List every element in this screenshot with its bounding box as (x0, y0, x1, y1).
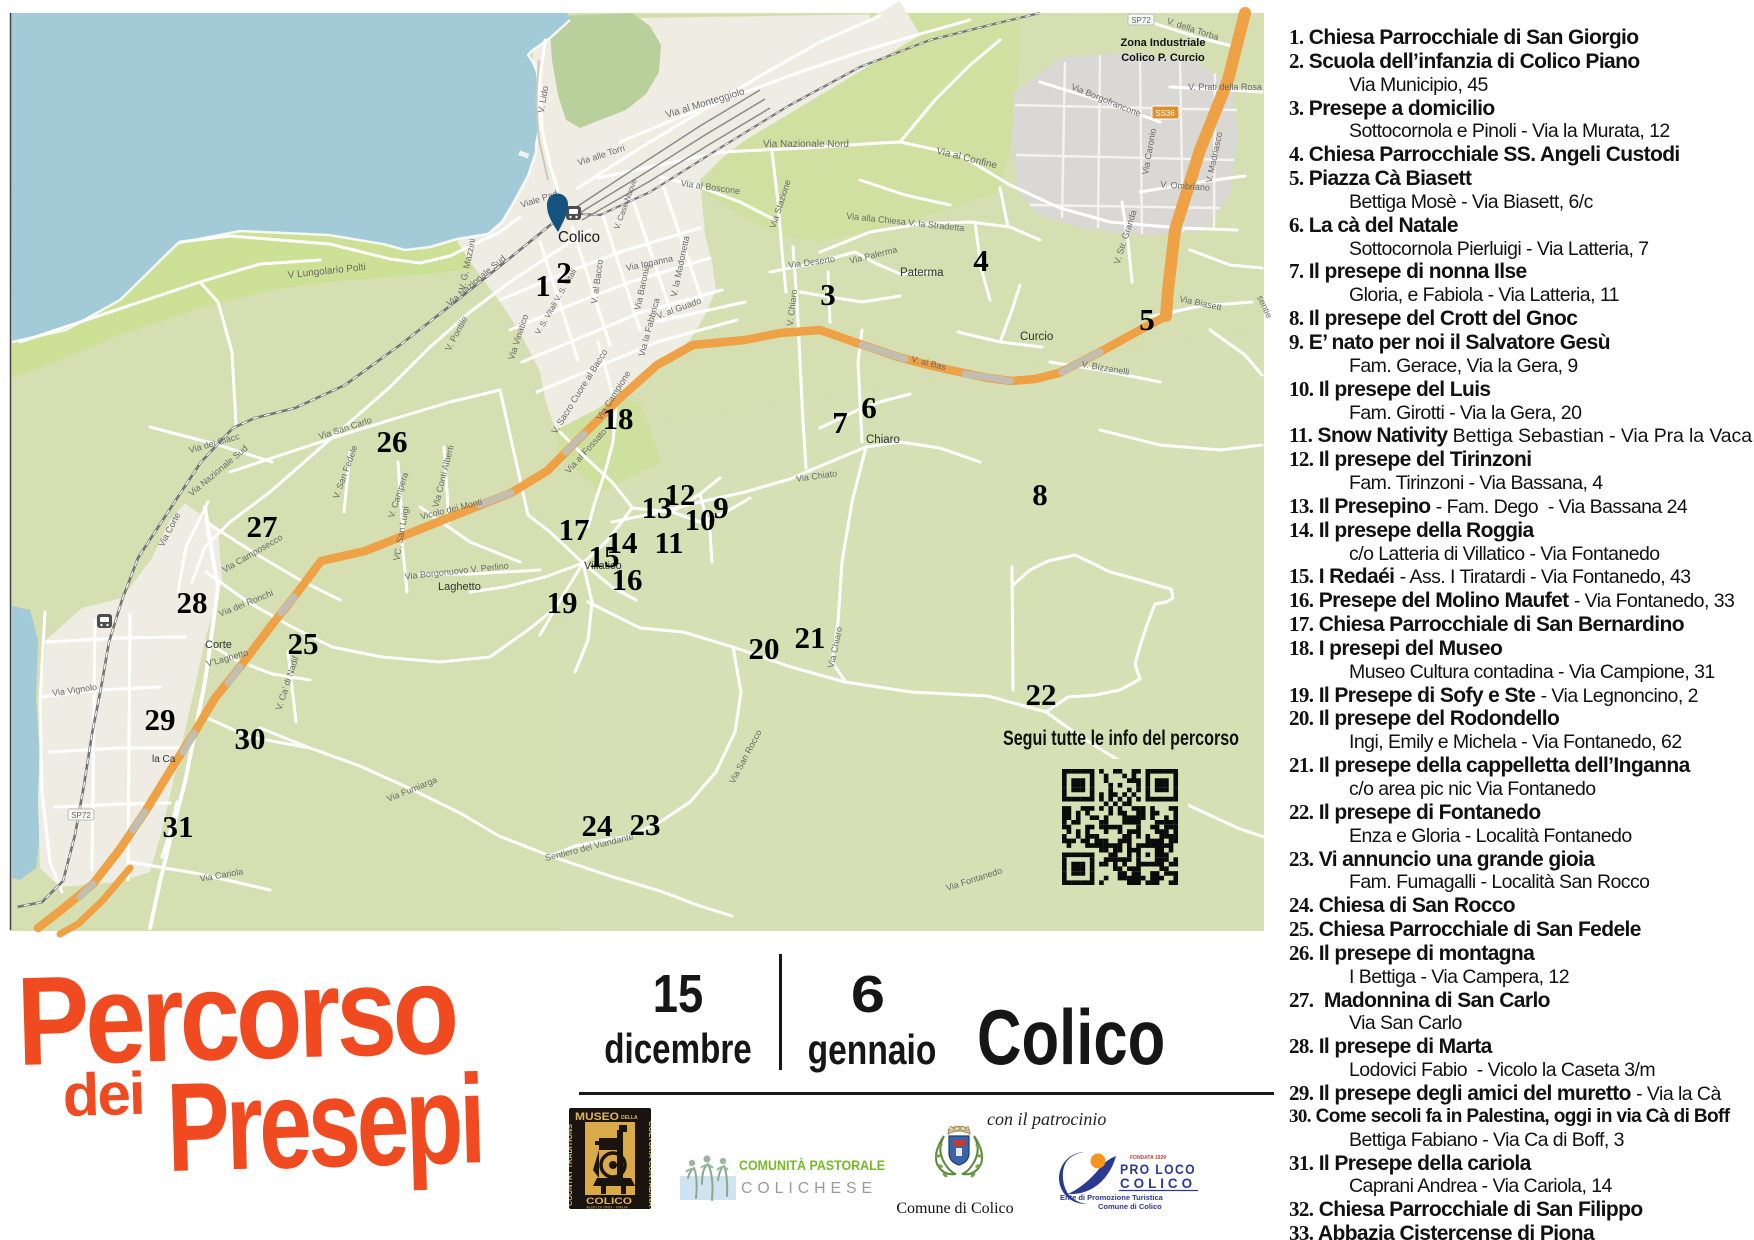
svg-text:COLICO: COLICO (1120, 1176, 1196, 1191)
svg-text:8: 8 (1032, 477, 1048, 512)
svg-text:25: 25 (288, 626, 319, 661)
svg-text:PRO LOCO: PRO LOCO (1120, 1162, 1196, 1177)
svg-text:COMUNITÀ PASTORALE: COMUNITÀ PASTORALE (739, 1158, 885, 1173)
svg-text:Colico P. Curcio: Colico P. Curcio (1121, 52, 1205, 64)
svg-text:11: 11 (654, 525, 683, 560)
svg-text:Segui tutte le info del percor: Segui tutte le info del percorso (1003, 727, 1239, 750)
svg-text:29: 29 (145, 702, 176, 737)
svg-text:COUNTRY TRADITIONS: COUNTRY TRADITIONS (569, 1124, 574, 1206)
svg-text:Colico: Colico (558, 229, 600, 246)
svg-text:Laghetto: Laghetto (438, 581, 481, 593)
svg-text:19: 19 (547, 585, 578, 620)
svg-text:Paterma: Paterma (900, 267, 944, 279)
svg-text:26: 26 (377, 424, 408, 459)
svg-text:3: 3 (820, 277, 836, 312)
svg-text:Zona Industriale: Zona Industriale (1121, 37, 1206, 49)
svg-text:13: 13 (642, 490, 673, 525)
svg-text:2: 2 (556, 255, 572, 290)
svg-text:V. Prati della Rosa: V. Prati della Rosa (1188, 82, 1262, 92)
svg-text:Chiaro: Chiaro (866, 434, 900, 446)
svg-text:Corte: Corte (205, 639, 232, 651)
svg-text:MUSEO: MUSEO (575, 1111, 619, 1123)
svg-text:6: 6 (861, 390, 877, 425)
svg-text:4: 4 (973, 243, 989, 278)
svg-text:DELLA: DELLA (621, 1115, 638, 1121)
svg-text:24: 24 (582, 808, 613, 843)
svg-text:27: 27 (247, 509, 278, 544)
svg-text:23: 23 (630, 807, 661, 842)
svg-text:9: 9 (713, 490, 729, 525)
svg-text:30: 30 (235, 721, 266, 756)
svg-text:la Ca: la Ca (152, 754, 176, 765)
svg-text:7: 7 (832, 405, 848, 440)
svg-text:COLICHESE: COLICHESE (741, 1180, 877, 1197)
svg-text:CULTURA CONTADINA: CULTURA CONTADINA (647, 1121, 651, 1208)
svg-text:22: 22 (1026, 677, 1057, 712)
svg-text:Curcio: Curcio (1020, 331, 1053, 343)
svg-text:FONDATA 1929: FONDATA 1929 (1130, 1155, 1166, 1161)
svg-text:16: 16 (612, 562, 643, 597)
svg-text:Via Nazionale Nord: Via Nazionale Nord (763, 139, 849, 150)
svg-text:ALBO DI ORO - ITALIA: ALBO DI ORO - ITALIA (586, 1205, 628, 1210)
svg-text:31: 31 (163, 809, 194, 844)
svg-text:SP72: SP72 (1131, 16, 1151, 25)
svg-text:SP72: SP72 (71, 811, 91, 820)
svg-text:28: 28 (177, 585, 208, 620)
svg-text:1: 1 (535, 268, 551, 303)
svg-text:Comune di Colico: Comune di Colico (1098, 1202, 1162, 1210)
svg-text:17: 17 (559, 512, 590, 547)
svg-text:5: 5 (1139, 302, 1155, 337)
svg-text:Ente di Promozione Turistica: Ente di Promozione Turistica (1060, 1193, 1164, 1202)
svg-text:SS36: SS36 (1155, 109, 1175, 118)
svg-text:21: 21 (795, 620, 826, 655)
svg-text:20: 20 (749, 631, 780, 666)
svg-text:18: 18 (603, 401, 634, 436)
